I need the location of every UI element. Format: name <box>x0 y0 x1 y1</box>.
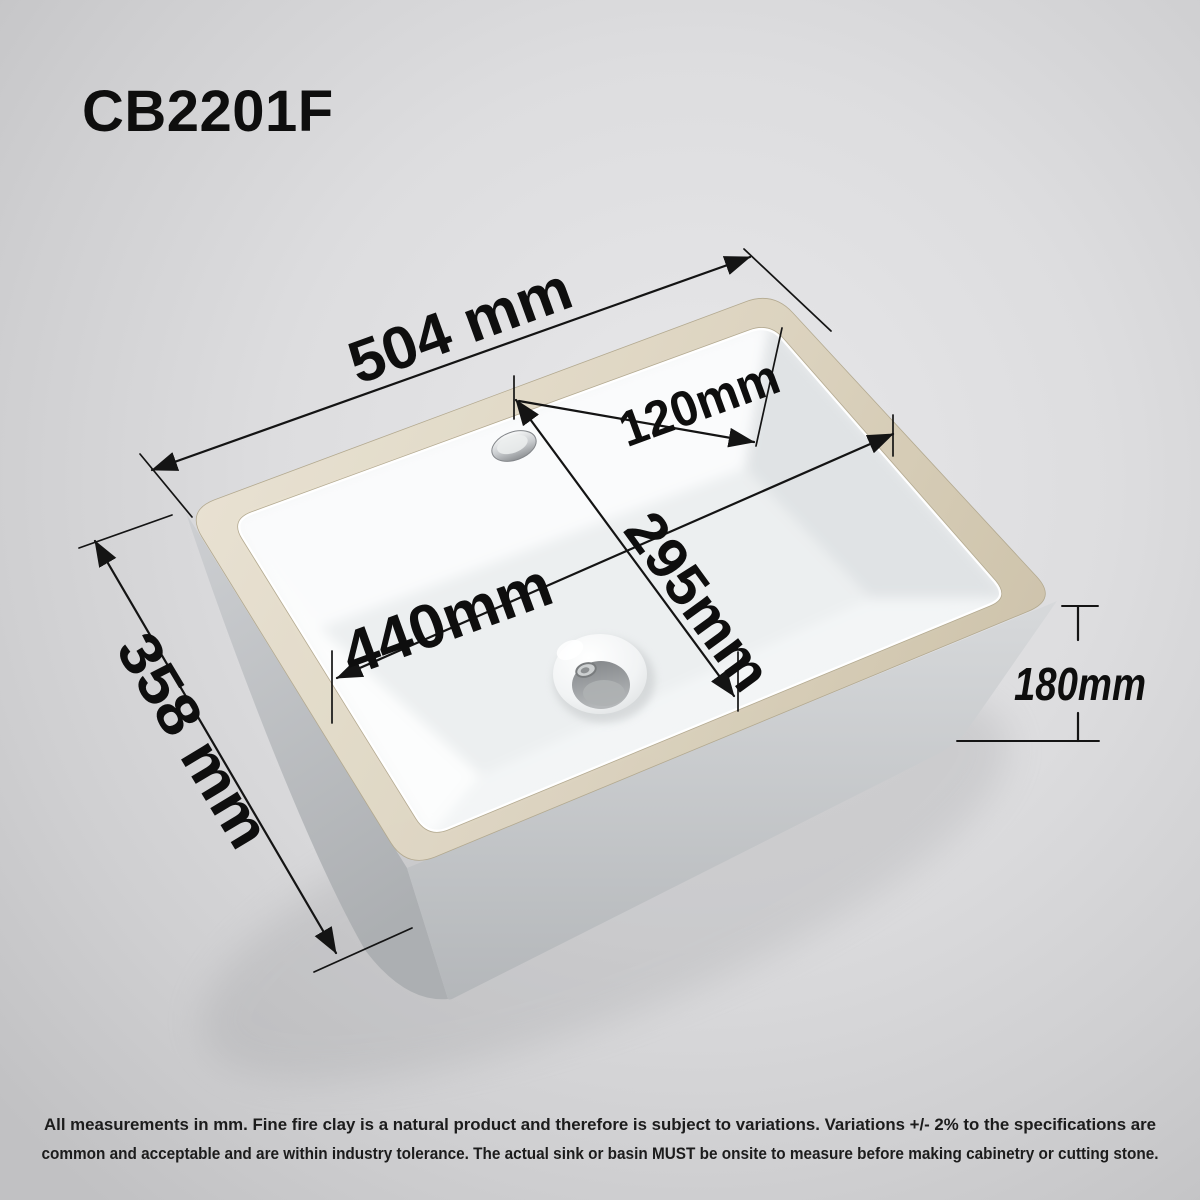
product-code-title: CB2201F <box>82 79 334 144</box>
sink-dimension-diagram: 504 mm 358 mm 440mm 295mm 120mm 180mm CB… <box>0 0 1200 1200</box>
disclaimer-line-2: common and acceptable and are within ind… <box>42 1144 1159 1163</box>
drain-hole-reflection <box>583 680 625 706</box>
dimension-label-depth: 180mm <box>1014 658 1146 710</box>
disclaimer-line-1: All measurements in mm. Fine fire clay i… <box>44 1115 1156 1134</box>
